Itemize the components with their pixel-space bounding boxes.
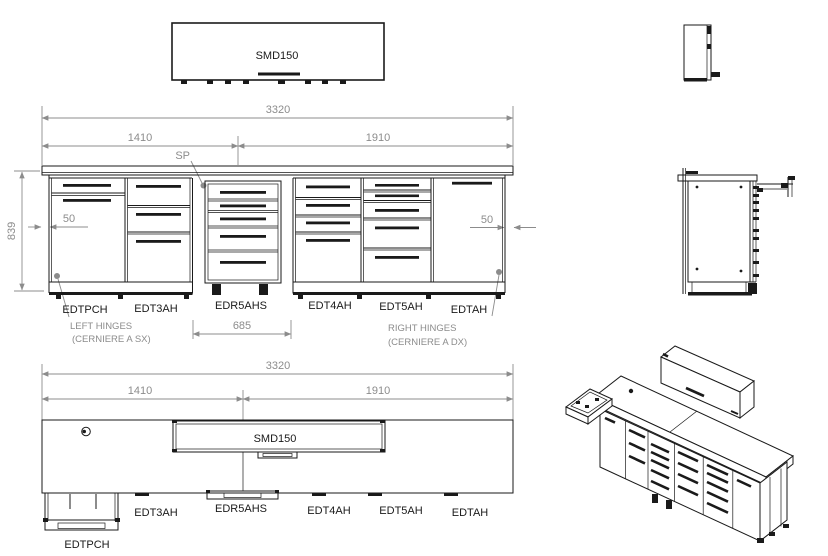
- side-panel: [688, 181, 750, 282]
- bench-side-view: [678, 168, 795, 296]
- plan-label-edt4ah: EDT4AH: [307, 505, 350, 517]
- front-dim-right: 1910: [366, 132, 390, 144]
- overhead-cabinet-side-view: [684, 25, 720, 82]
- plan-label-edt3ah: EDT3AH: [134, 507, 177, 519]
- caster-right: [259, 284, 268, 295]
- plan-label-edr5ahs: EDR5AHS: [215, 503, 267, 515]
- plan-view-dimensions: 3320 1410 1910: [42, 360, 513, 420]
- left-hinges-note-line1: LEFT HINGES: [70, 321, 132, 332]
- front-dim-left: 1410: [128, 132, 152, 144]
- plan-label-edt5ah: EDT5AH: [379, 505, 422, 517]
- worktop-side: [678, 175, 757, 181]
- overhead-cabinet-front-view: SMD150: [172, 23, 384, 84]
- right-hinges-note-line2: (CERNIERE A DX): [388, 337, 467, 348]
- unit-edtpch-plan: [43, 493, 120, 530]
- front-label-edt3ah: EDT3AH: [134, 303, 177, 315]
- caster-side: [748, 283, 757, 294]
- sp-point: [201, 183, 207, 189]
- plan-view-labels: EDTPCH EDT3AH EDR5AHS EDT4AH EDT5AH EDTA…: [64, 503, 488, 551]
- left-hinge-point: [54, 273, 60, 279]
- unit-edt3ah-front: [128, 185, 191, 243]
- front-dim-overhang-left: 50: [63, 213, 75, 225]
- front-label-edr5ahs: EDR5AHS: [215, 300, 267, 312]
- workbench-technical-drawing: SMD150 3320 1410 1910 839 SP 50: [0, 0, 828, 556]
- unit-edr5ahs-front: [205, 181, 281, 295]
- unit-edtah-front: [452, 182, 492, 185]
- front-elevation: [42, 166, 513, 299]
- isometric-view: [566, 346, 793, 543]
- unit-edt5ah-front: [364, 184, 432, 259]
- plan-dim-right: 1910: [366, 385, 390, 397]
- front-dim-bay: 685: [233, 320, 251, 332]
- worktop-front: [42, 166, 513, 175]
- plan-dim-total: 3320: [266, 360, 290, 372]
- sp-label: SP: [175, 150, 190, 162]
- left-hinges-note-line2: (CERNIERE A SX): [72, 334, 151, 345]
- overhead-cabinet-plan: SMD150: [172, 420, 385, 458]
- front-label-edt5ah: EDT5AH: [379, 301, 422, 313]
- technical-drawing-page: SMD150 3320 1410 1910 839 SP 50: [0, 0, 828, 556]
- front-dim-total: 3320: [266, 104, 290, 116]
- plan-view: SMD150: [42, 420, 513, 530]
- front-dim-height: 839: [6, 222, 18, 240]
- unit-edt4ah-front: [296, 186, 362, 242]
- front-dim-overhang-right: 50: [481, 214, 493, 226]
- unit-edr5ahs-plan: [206, 490, 279, 499]
- overhead-cabinet-plan-code: SMD150: [254, 433, 297, 445]
- pull-out-rail-side: [757, 176, 795, 197]
- front-label-edt4ah: EDT4AH: [308, 300, 351, 312]
- plan-label-edtpch: EDTPCH: [64, 539, 109, 551]
- right-hinge-point: [496, 269, 502, 275]
- caster-left: [212, 284, 221, 295]
- front-label-edtpch: EDTPCH: [62, 304, 107, 316]
- plan-dim-left: 1410: [128, 385, 152, 397]
- unit-edtpch-front: [52, 184, 126, 202]
- plan-label-edtah: EDTAH: [452, 507, 489, 519]
- right-hinges-note-line1: RIGHT HINGES: [388, 323, 456, 334]
- front-elevation-labels: EDTPCH EDT3AH EDR5AHS EDT4AH EDT5AH EDTA…: [62, 300, 487, 348]
- front-label-edtah: EDTAH: [451, 304, 488, 316]
- worktop-hole: [82, 427, 91, 436]
- overhead-cabinet-code: SMD150: [256, 50, 299, 62]
